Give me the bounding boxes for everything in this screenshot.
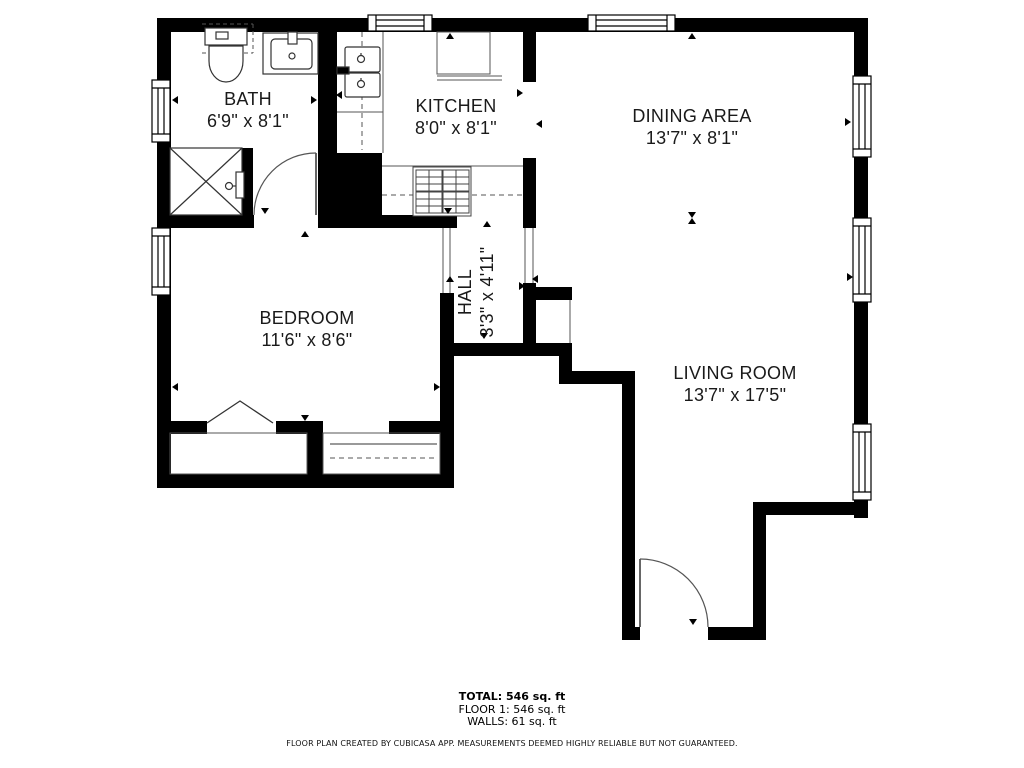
closet-outline	[170, 433, 440, 474]
room-name: BEDROOM	[259, 307, 354, 329]
room-label-bedroom: BEDROOM 11'6" x 8'6"	[259, 307, 354, 351]
window-bedroom-left	[152, 228, 170, 295]
room-label-hall: HALL 3'3" x 4'11"	[454, 247, 498, 338]
floor-plan-page: BATH 6'9" x 8'1" KITCHEN 8'0" x 8'1" DIN…	[0, 0, 1024, 768]
disclaimer-text: FLOOR PLAN CREATED BY CUBICASA APP. MEAS…	[0, 739, 1024, 748]
window-dining-right	[853, 76, 871, 157]
room-dims: 8'0" x 8'1"	[415, 117, 497, 139]
window-living-right-upper	[853, 218, 871, 302]
room-label-living: LIVING ROOM 13'7" x 17'5"	[673, 362, 796, 406]
kitchen-sink-fixture	[337, 47, 380, 97]
window-kitchen-top	[368, 15, 432, 31]
entry-door	[640, 559, 708, 627]
bath-door	[254, 153, 316, 215]
room-dims: 3'3" x 4'11"	[476, 247, 498, 338]
floor-plan-drawing	[0, 0, 1024, 768]
room-label-kitchen: KITCHEN 8'0" x 8'1"	[415, 95, 497, 139]
closet-shelf	[330, 444, 437, 458]
window-bath-left	[152, 80, 170, 142]
room-dims: 11'6" x 8'6"	[259, 329, 354, 351]
room-name: HALL	[454, 247, 476, 338]
room-dims: 13'7" x 8'1"	[632, 127, 751, 149]
walls-area: WALLS: 61 sq. ft	[0, 716, 1024, 729]
refrigerator-fixture	[437, 32, 502, 80]
window-living-right-lower	[853, 424, 871, 500]
room-dims: 6'9" x 8'1"	[207, 110, 289, 132]
stove-fixture	[413, 167, 471, 216]
room-dims: 13'7" x 17'5"	[673, 384, 796, 406]
room-label-dining: DINING AREA 13'7" x 8'1"	[632, 105, 751, 149]
room-label-bath: BATH 6'9" x 8'1"	[207, 88, 289, 132]
shower-fixture	[170, 148, 244, 215]
room-name: LIVING ROOM	[673, 362, 796, 384]
total-area: TOTAL: 546 sq. ft	[0, 691, 1024, 704]
room-name: DINING AREA	[632, 105, 751, 127]
closet-bifold-door	[207, 401, 273, 423]
room-name: BATH	[207, 88, 289, 110]
bathroom-sink-fixture	[263, 32, 318, 74]
window-dining-top	[588, 15, 675, 31]
area-summary: TOTAL: 546 sq. ft FLOOR 1: 546 sq. ft WA…	[0, 691, 1024, 729]
room-name: KITCHEN	[415, 95, 497, 117]
toilet-fixture	[202, 24, 253, 82]
